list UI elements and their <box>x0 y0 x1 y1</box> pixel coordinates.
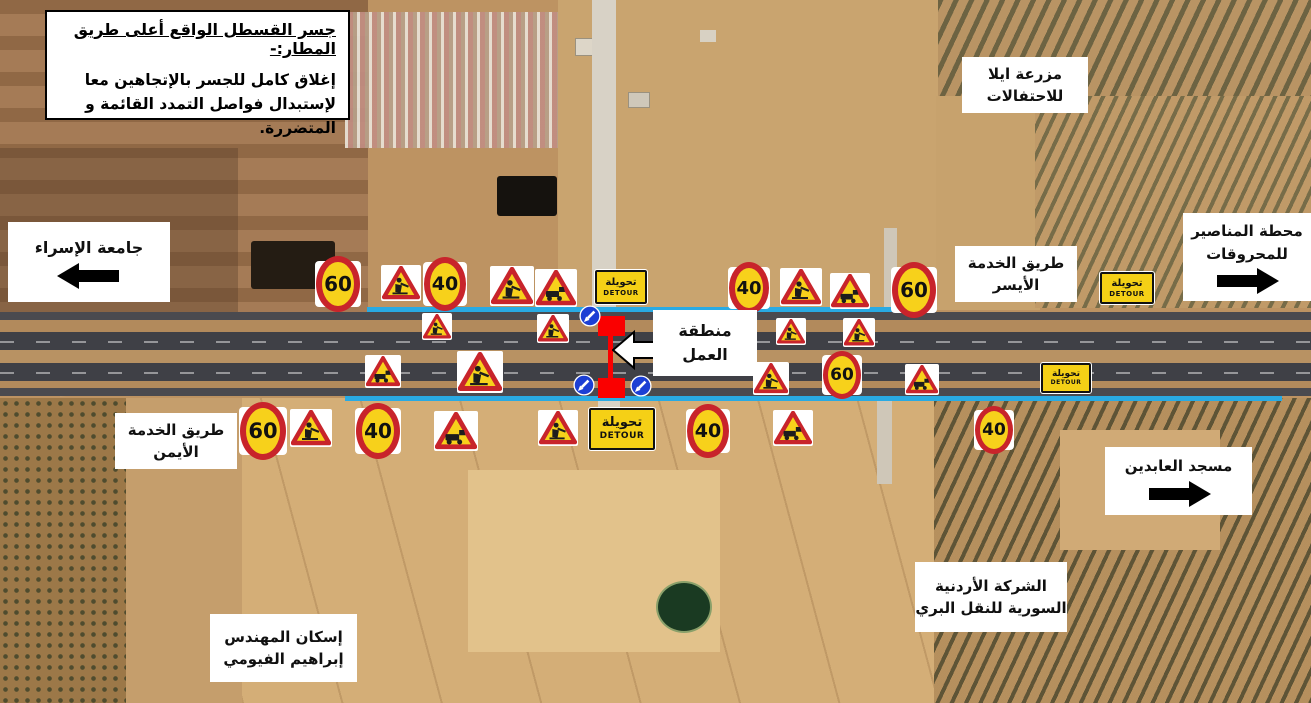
speed-limit-sign-60: 60 <box>315 261 361 307</box>
speed-limit-sign-60: 60 <box>822 355 862 395</box>
map-label-text: الشركة الأردنية السورية للنقل البري <box>915 575 1066 620</box>
speed-limit-value: 60 <box>892 262 936 318</box>
speed-limit-value: 40 <box>729 262 769 314</box>
speed-limit-sign-40: 40 <box>355 408 401 454</box>
heavy-equipment-warning-sign <box>434 411 478 451</box>
speed-limit-sign-40: 40 <box>974 410 1014 450</box>
map-label-text: طريق الخدمة الأيسر <box>968 252 1064 297</box>
detour-text-arabic: تحويلة <box>605 277 636 289</box>
speed-limit-value: 60 <box>823 351 861 399</box>
mandatory-direction-sign <box>573 374 595 396</box>
detour-text-english: DETOUR <box>1051 380 1082 387</box>
plan-description: إغلاق كامل للجسر بالإتجاهين معا لإستبدال… <box>59 68 336 140</box>
detour-text-english: DETOUR <box>600 431 645 441</box>
highway-verge <box>0 381 1311 388</box>
detour-text-arabic: تحويلة <box>602 416 642 431</box>
map-label-text: جامعة الإسراء <box>35 236 144 260</box>
roadworks-warning-sign <box>776 318 806 345</box>
speed-limit-value: 60 <box>316 256 360 312</box>
speed-limit-value: 40 <box>975 406 1013 454</box>
detour-text-english: DETOUR <box>1109 290 1144 298</box>
heavy-equipment-warning-sign <box>535 269 577 307</box>
map-label-jordanian-syrian-transport: الشركة الأردنية السورية للنقل البري <box>915 562 1067 632</box>
speed-limit-sign-40: 40 <box>423 262 467 306</box>
map-greenhouses <box>345 12 571 148</box>
speed-limit-sign-40: 40 <box>686 409 730 453</box>
detour-sign: تحويلةDETOUR <box>1041 363 1091 393</box>
map-building <box>700 30 716 42</box>
speed-limit-value: 60 <box>240 402 286 460</box>
work-area-pointer-arrow-icon <box>612 329 658 375</box>
route-highlight-line-bottom <box>345 396 1282 401</box>
roadworks-warning-sign <box>537 314 569 343</box>
map-label-text: منطقة العمل <box>678 319 731 367</box>
map-side-road <box>592 0 616 314</box>
roadworks-warning-sign <box>843 318 875 347</box>
roadworks-warning-sign <box>457 351 503 393</box>
map-label-text: محطة المناصير للمحروقات <box>1191 220 1303 265</box>
speed-limit-sign-60: 60 <box>891 267 937 313</box>
detour-sign: تحويلةDETOUR <box>595 270 647 304</box>
map-label-fayoumi-housing: إسكان المهندس إبراهيم الفيومي <box>210 614 357 682</box>
direction-arrow-right-icon <box>1147 481 1211 507</box>
map-label-text: مسجد العابدين <box>1125 455 1233 478</box>
map-label-manaseer-fuel-station: محطة المناصير للمحروقات <box>1183 213 1311 301</box>
map-building <box>628 92 650 108</box>
detour-text-english: DETOUR <box>603 289 638 297</box>
map-label-text: مزرعة ايلا للاحتفالات <box>987 63 1064 108</box>
speed-limit-value: 40 <box>356 403 400 459</box>
roadworks-warning-sign <box>422 313 452 340</box>
map-label-text: إسكان المهندس إبراهيم الفيومي <box>223 626 343 671</box>
detour-plan-map: 60 40 تحويلةDETOUR40 60تحويلةDETOUR 60 ت… <box>0 0 1311 703</box>
map-label-left-service-road: طريق الخدمة الأيسر <box>955 246 1077 302</box>
speed-limit-value: 40 <box>687 404 729 458</box>
map-label-text: طريق الخدمة الأيمن <box>128 419 224 464</box>
map-label-work-area: منطقة العمل <box>653 310 757 376</box>
map-side-road <box>877 396 892 484</box>
roadworks-warning-sign <box>538 410 578 446</box>
map-label-abideen-mosque: مسجد العابدين <box>1105 447 1252 515</box>
roadworks-warning-sign <box>381 265 421 301</box>
map-pond <box>497 176 557 216</box>
speed-limit-sign-40: 40 <box>728 267 770 309</box>
roadworks-warning-sign <box>290 409 332 447</box>
service-road-lower <box>0 388 1311 396</box>
map-sandy-area <box>558 0 958 310</box>
map-orchard-grid <box>0 398 126 703</box>
roadworks-warning-sign <box>780 268 822 306</box>
work-zone-closure-marker-bottom <box>598 378 625 398</box>
roadworks-warning-sign <box>490 266 534 306</box>
mandatory-direction-sign <box>579 305 601 327</box>
map-pond <box>656 581 712 633</box>
plan-title-box: جسر القسطل الواقع أعلى طريق المطار:- إغل… <box>45 10 350 120</box>
mandatory-direction-sign <box>630 375 652 397</box>
map-label-ayla-farm: مزرعة ايلا للاحتفالات <box>962 57 1088 113</box>
heavy-equipment-warning-sign <box>830 273 870 309</box>
detour-sign: تحويلةDETOUR <box>1100 272 1154 304</box>
detour-sign: تحويلةDETOUR <box>589 408 655 450</box>
plan-title: جسر القسطل الواقع أعلى طريق المطار:- <box>59 20 336 58</box>
heavy-equipment-warning-sign <box>365 355 401 388</box>
heavy-equipment-warning-sign <box>905 364 939 395</box>
speed-limit-value: 40 <box>424 257 466 311</box>
speed-limit-sign-60: 60 <box>239 407 287 455</box>
direction-arrow-right-icon <box>1215 268 1279 294</box>
map-label-isra-university: جامعة الإسراء <box>8 222 170 302</box>
map-label-right-service-road: طريق الخدمة الأيمن <box>115 413 237 469</box>
roadworks-warning-sign <box>753 362 789 395</box>
detour-text-arabic: تحويلة <box>1111 278 1142 290</box>
direction-arrow-left-icon <box>57 263 121 289</box>
heavy-equipment-warning-sign <box>773 410 813 446</box>
